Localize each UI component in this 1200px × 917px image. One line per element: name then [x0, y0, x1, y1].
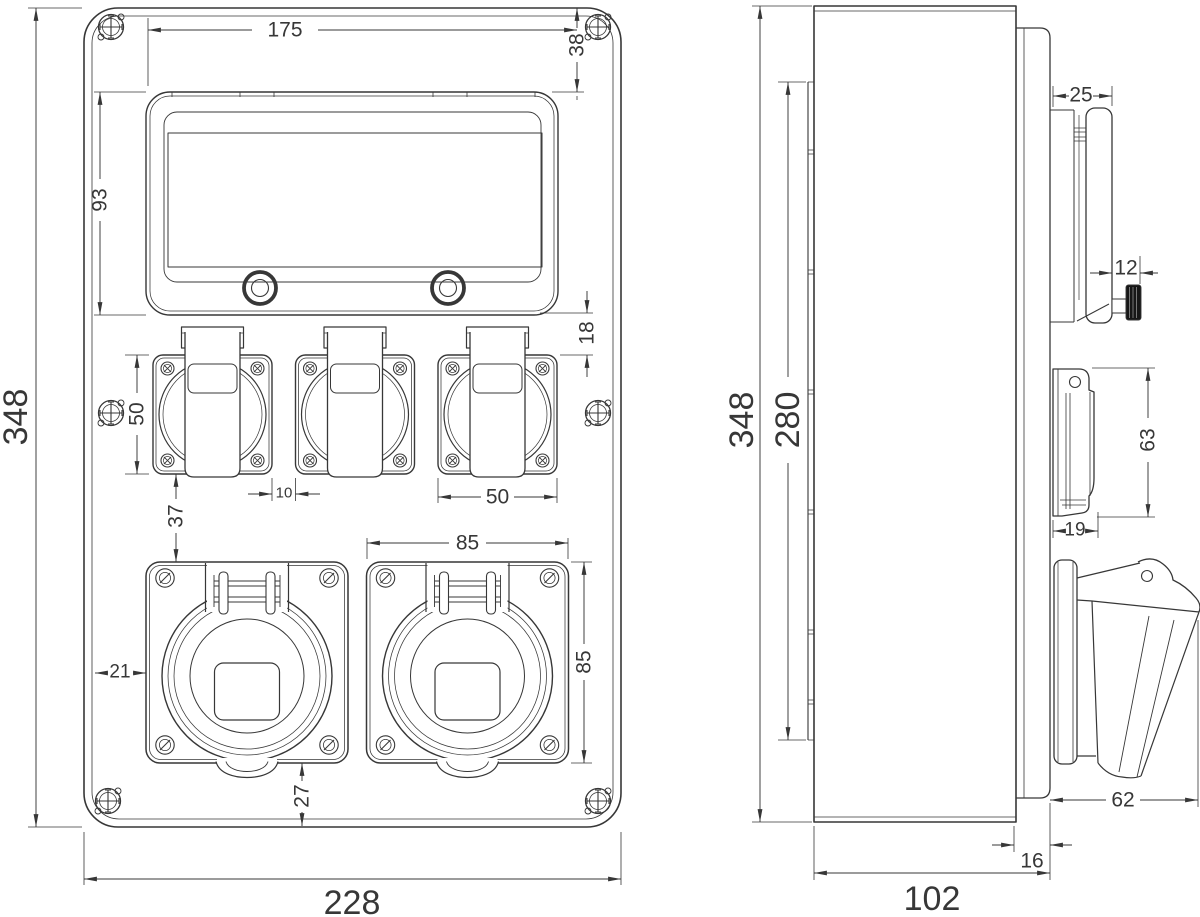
dimensions-front: 175 38 93 18 50 10 50 37 — [0, 8, 621, 917]
side-body-outline — [814, 6, 1016, 822]
dim-window-height: 93 — [89, 188, 112, 211]
dim-cover-depth: 25 — [1069, 84, 1092, 107]
cee-socket-2 — [367, 562, 569, 778]
dim-socket-width: 50 — [486, 486, 509, 509]
front-view — [84, 8, 621, 827]
din-window — [146, 92, 558, 315]
window-frame-inner — [150, 96, 554, 311]
schuko-socket-1 — [153, 327, 272, 477]
technical-drawing: 175 38 93 18 50 10 50 37 — [0, 0, 1200, 917]
front-flange — [1016, 28, 1050, 798]
dim-sockets-to-cee: 37 — [165, 504, 188, 527]
window-lid — [164, 112, 541, 282]
latch-screw-left — [244, 272, 276, 304]
dim-cee-depth: 62 — [1111, 789, 1134, 812]
dim-window-offset-top: 38 — [566, 33, 589, 56]
schuko-socket-3 — [438, 327, 557, 477]
dim-side-socket-height: 63 — [1137, 428, 1160, 451]
schuko-socket-2 — [296, 327, 415, 477]
cover-knob — [1126, 285, 1141, 320]
dim-mount-height: 280 — [769, 392, 807, 449]
dimensions-side: 348 280 25 12 63 19 62 16 — [723, 6, 1198, 917]
technical-drawing-page: 175 38 93 18 50 10 50 37 — [0, 0, 1200, 917]
dim-cee-offset-bottom: 27 — [291, 784, 314, 807]
latch-screw-right — [432, 272, 464, 304]
dim-knob-depth: 12 — [1114, 257, 1137, 280]
dim-socket-height: 50 — [126, 402, 149, 425]
knob-stem — [1112, 299, 1126, 313]
dim-window-width: 175 — [267, 19, 302, 42]
dim-socket-depth: 19 — [1064, 520, 1085, 541]
schuko-side-profile — [1053, 369, 1094, 516]
dim-cee-height: 85 — [573, 650, 596, 673]
dim-window-to-sockets: 18 — [576, 321, 599, 344]
dim-socket-gap: 10 — [276, 485, 293, 502]
side-view — [808, 6, 1200, 822]
window-aperture — [168, 133, 542, 267]
dim-overall-width: 228 — [324, 884, 381, 917]
window-cover-side — [1050, 108, 1141, 323]
window-cover-flap — [1086, 108, 1112, 323]
dim-side-overall-height: 348 — [723, 392, 761, 449]
dim-overall-height: 348 — [0, 389, 35, 446]
mount-rail — [808, 82, 814, 740]
cee-socket-1 — [146, 562, 348, 778]
dim-front-depth: 16 — [1020, 850, 1043, 873]
dim-cee-offset-left: 21 — [109, 662, 130, 683]
dim-cee-width: 85 — [456, 532, 479, 555]
cee-side-profile — [1054, 559, 1200, 778]
dim-overall-depth: 102 — [904, 880, 961, 917]
